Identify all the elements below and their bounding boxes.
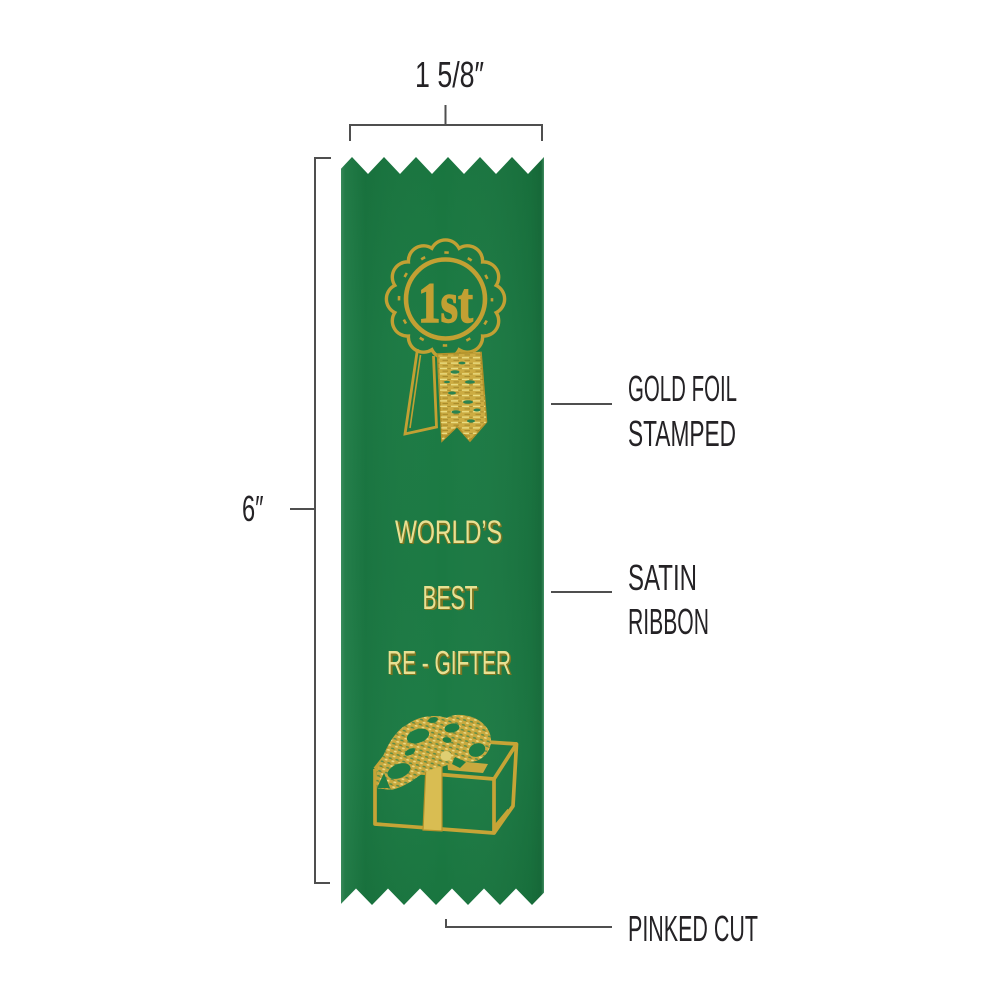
svg-text:PINKED CUT: PINKED CUT [628,908,758,949]
svg-text:1st: 1st [418,272,473,335]
svg-text:6″: 6″ [242,488,264,529]
svg-text:RIBBON: RIBBON [628,601,709,642]
svg-text:WORLD’S: WORLD’S [395,514,502,550]
svg-text:SATIN: SATIN [628,557,697,598]
svg-text:BEST: BEST [423,579,478,616]
svg-text:RE - GIFTER: RE - GIFTER [387,644,511,681]
svg-text:1 5/8″: 1 5/8″ [415,54,484,95]
svg-text:GOLD FOIL: GOLD FOIL [628,368,737,409]
svg-text:STAMPED: STAMPED [628,413,736,454]
